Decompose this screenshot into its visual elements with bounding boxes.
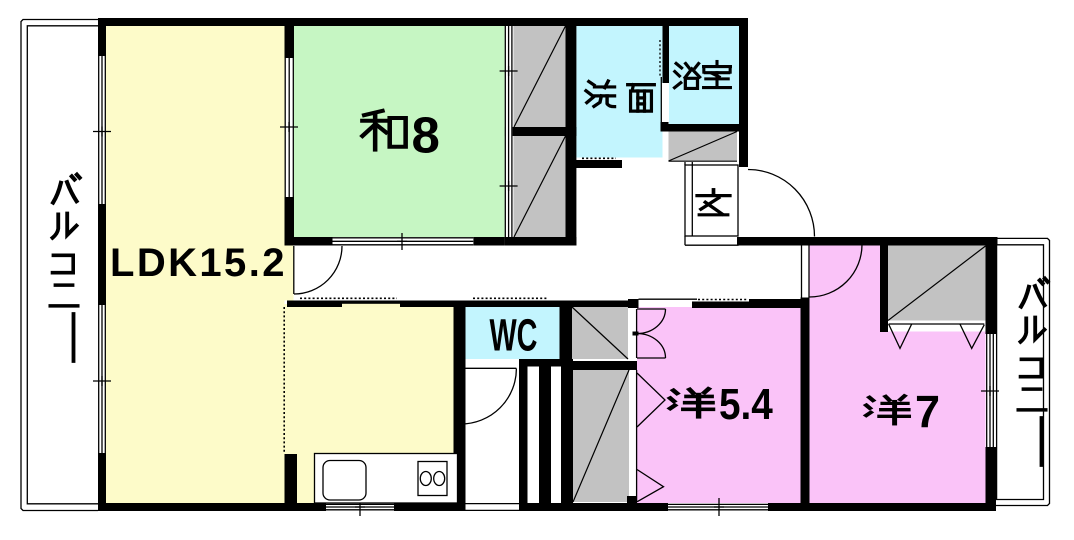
svg-text:WC: WC	[490, 311, 538, 361]
svg-text:7: 7	[915, 386, 940, 437]
svg-text:LDK15.2: LDK15.2	[110, 241, 287, 285]
svg-text:5.4: 5.4	[719, 379, 773, 429]
svg-text:8: 8	[412, 107, 440, 164]
